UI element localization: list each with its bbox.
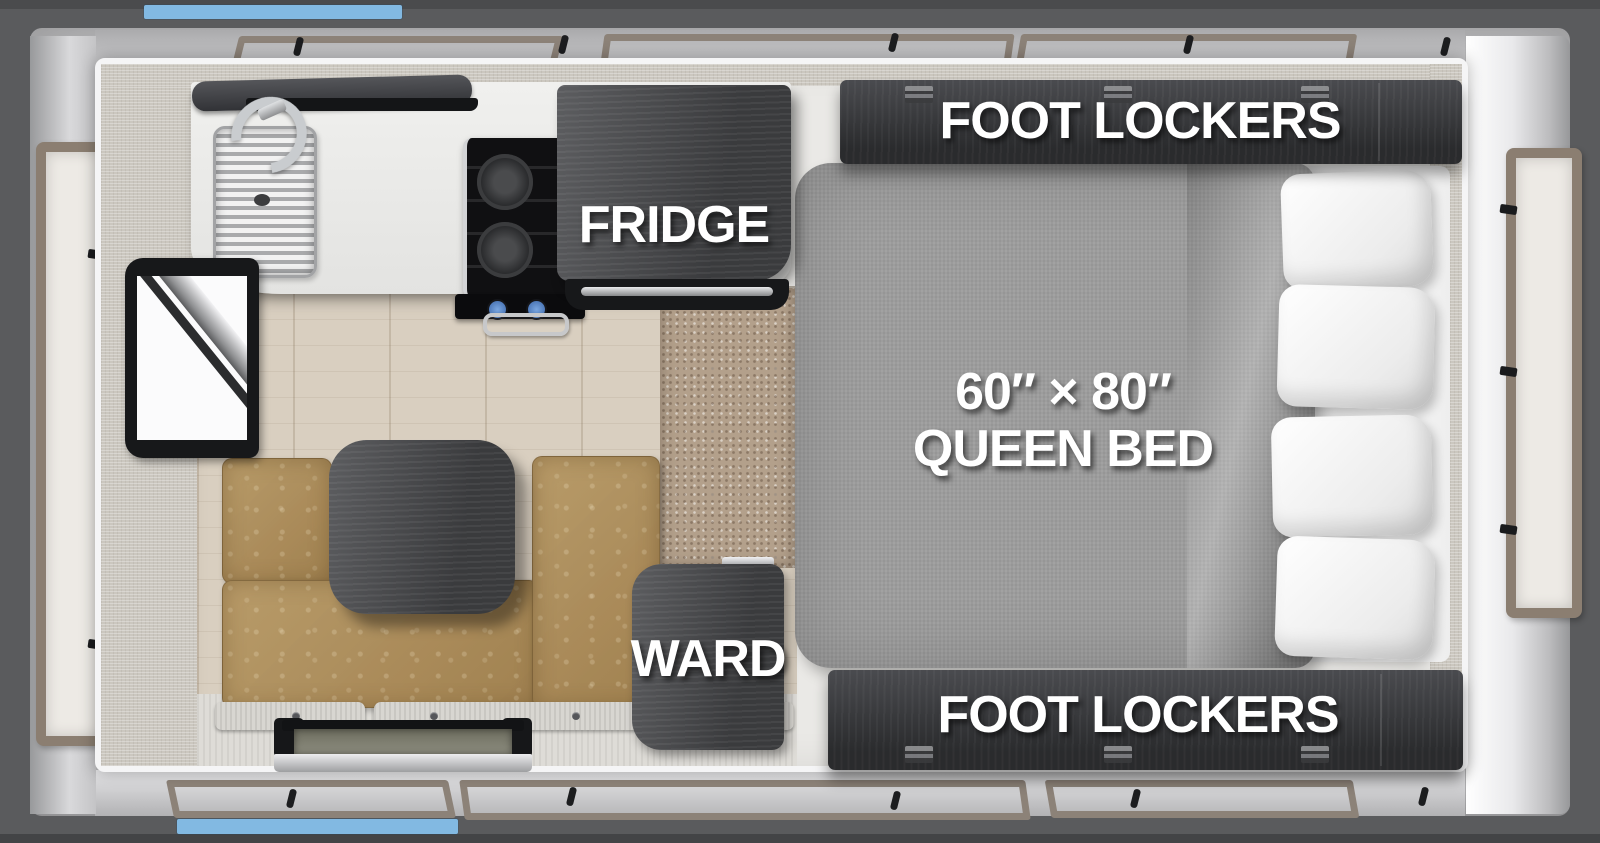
fridge-handle bbox=[581, 287, 773, 296]
dinette-seat-back bbox=[222, 458, 332, 584]
pillow bbox=[1271, 414, 1433, 537]
foot-lockers-top-label: FOOT LOCKERS bbox=[840, 94, 1440, 150]
queen-bed-label: 60″ × 80″ QUEEN BED bbox=[843, 356, 1283, 486]
bumper-panel bbox=[459, 780, 1031, 820]
camper-floorplan: FRIDGE WARD FOOT LOCKERS FOOT LOCKERS 60… bbox=[0, 0, 1600, 843]
pillow bbox=[1274, 536, 1436, 661]
pillow bbox=[1280, 169, 1434, 290]
entry-step bbox=[274, 718, 532, 772]
bed-size-text: 60″ × 80″ bbox=[955, 364, 1171, 421]
accent-bar-top bbox=[144, 5, 402, 19]
locker-latch bbox=[1104, 746, 1132, 763]
wardrobe-label: WARD bbox=[620, 632, 796, 688]
tv bbox=[125, 258, 259, 458]
oven-handle bbox=[483, 313, 569, 336]
side-window-right bbox=[1506, 148, 1582, 618]
locker-latch bbox=[905, 746, 933, 763]
foot-lockers-bottom-label: FOOT LOCKERS bbox=[828, 688, 1448, 744]
fridge-label: FRIDGE bbox=[557, 198, 791, 254]
bed-name-text: QUEEN BED bbox=[913, 421, 1213, 478]
stove-burner bbox=[477, 222, 533, 278]
sill-screw bbox=[572, 712, 580, 720]
bumper-panel bbox=[1045, 780, 1360, 818]
bumper-panel bbox=[166, 780, 456, 818]
dinette-table bbox=[329, 440, 515, 614]
fridge-front bbox=[565, 279, 789, 310]
pillow bbox=[1276, 284, 1435, 410]
stove-burner bbox=[477, 154, 533, 210]
sink-drain bbox=[254, 194, 270, 206]
accent-bar-bottom bbox=[177, 819, 458, 834]
entry-carpet bbox=[660, 288, 796, 568]
tv-screen bbox=[137, 276, 247, 440]
shell-bottom-edge bbox=[0, 834, 1600, 843]
locker-latch bbox=[1301, 746, 1329, 763]
step-front bbox=[274, 754, 532, 772]
step-tread bbox=[294, 729, 512, 755]
